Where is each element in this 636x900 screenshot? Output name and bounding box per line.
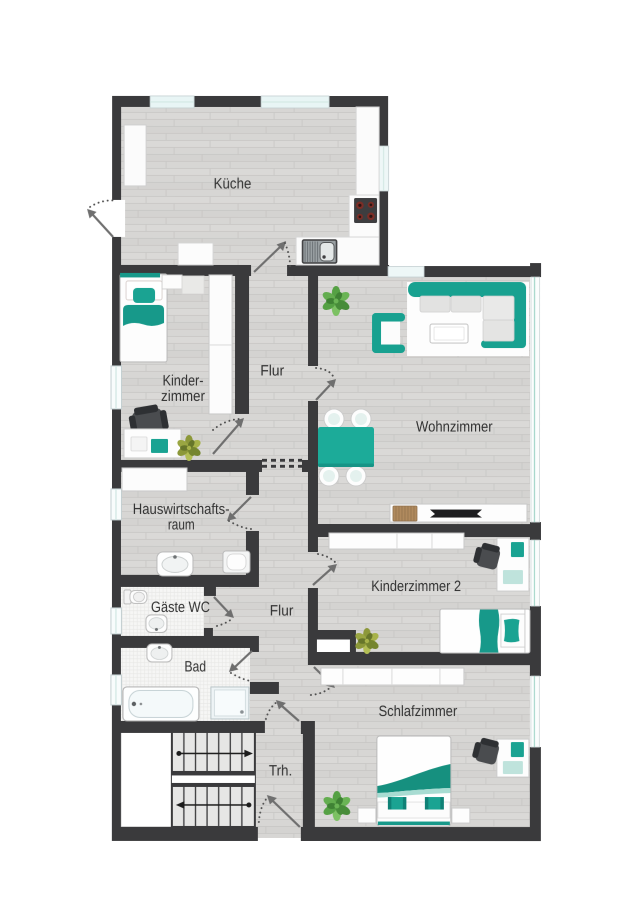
svg-text:Flur: Flur [270, 602, 294, 619]
svg-text:Schlafzimmer: Schlafzimmer [379, 703, 458, 720]
svg-text:Kinder-: Kinder- [163, 372, 204, 389]
svg-text:Bad: Bad [184, 658, 206, 675]
svg-text:Hauswirtschafts-: Hauswirtschafts- [133, 501, 230, 518]
svg-text:Trh.: Trh. [269, 762, 292, 779]
svg-text:raum: raum [168, 516, 195, 533]
svg-text:Flur: Flur [260, 362, 284, 379]
svg-text:Kinderzimmer 2: Kinderzimmer 2 [371, 578, 461, 595]
svg-text:zimmer: zimmer [161, 388, 205, 405]
svg-text:Gäste WC: Gäste WC [151, 599, 210, 616]
svg-text:Wohnzimmer: Wohnzimmer [416, 419, 493, 436]
svg-text:Küche: Küche [214, 175, 252, 192]
